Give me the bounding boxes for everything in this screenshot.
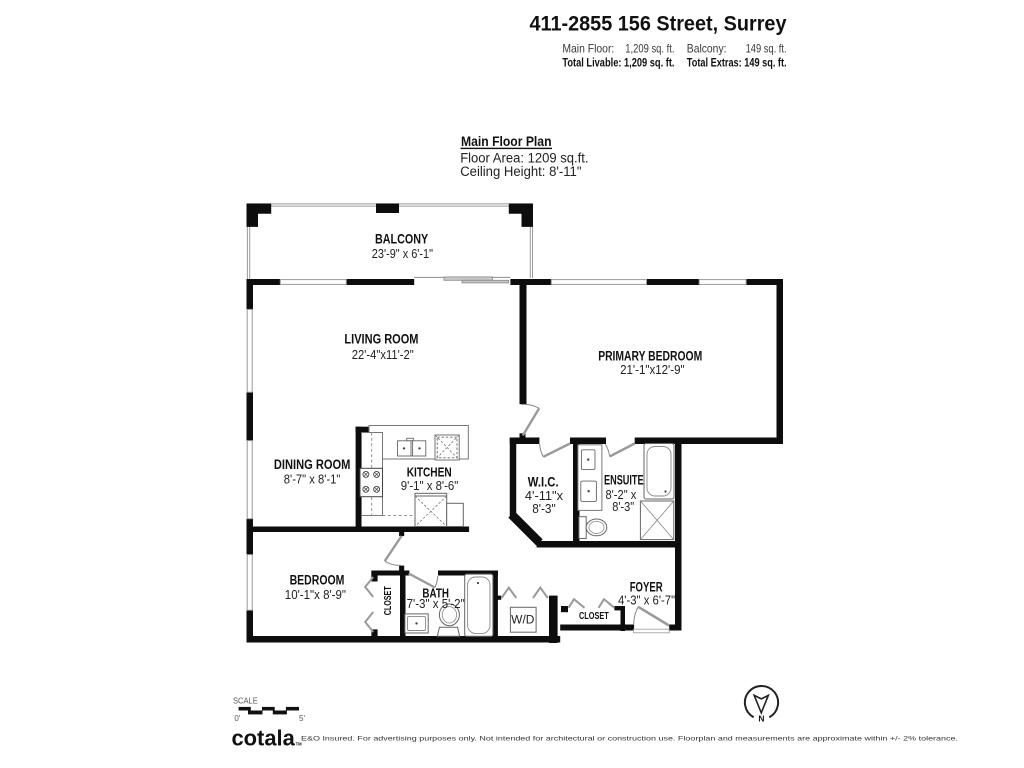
svg-text:Total Livable: 1,209 sq. ft.: Total Livable: 1,209 sq. ft. xyxy=(562,55,674,69)
svg-text:23'-9" x 6'-1": 23'-9" x 6'-1" xyxy=(372,247,433,261)
svg-text:W/D: W/D xyxy=(511,615,534,627)
svg-text:1,209 sq. ft.: 1,209 sq. ft. xyxy=(625,42,674,56)
svg-text:7'-3" x 5'-2": 7'-3" x 5'-2" xyxy=(407,597,465,611)
svg-text:CLOSET: CLOSET xyxy=(579,611,609,622)
svg-text:8'-3": 8'-3" xyxy=(612,500,634,514)
svg-text:DINING ROOM: DINING ROOM xyxy=(274,457,351,472)
svg-text:Total Extras: 149 sq. ft.: Total Extras: 149 sq. ft. xyxy=(687,55,787,69)
svg-text:411-2855 156 Street, Surrey: 411-2855 156 Street, Surrey xyxy=(530,13,787,36)
svg-text:4'-3" x 6'-7": 4'-3" x 6'-7" xyxy=(618,594,675,608)
svg-text:BALCONY: BALCONY xyxy=(375,232,428,247)
svg-text:CLOSET: CLOSET xyxy=(383,586,394,615)
svg-text:PRIMARY BEDROOM: PRIMARY BEDROOM xyxy=(598,349,702,364)
svg-text:E&O Insured. For advertising p: E&O Insured. For advertising purposes on… xyxy=(301,736,958,743)
svg-text:Main Floor:: Main Floor: xyxy=(562,42,614,56)
svg-text:10'-1"x 8'-9": 10'-1"x 8'-9" xyxy=(285,588,346,602)
svg-text:BEDROOM: BEDROOM xyxy=(290,573,345,588)
svg-text:0': 0' xyxy=(234,714,240,723)
svg-text:9'-1" x 8'-6": 9'-1" x 8'-6" xyxy=(401,479,459,493)
svg-text:Main Floor Plan: Main Floor Plan xyxy=(461,133,552,149)
svg-text:Ceiling Height: 8'-11": Ceiling Height: 8'-11" xyxy=(460,164,581,179)
svg-text:SCALE: SCALE xyxy=(233,696,258,706)
svg-text:8'-7" x 8'-1": 8'-7" x 8'-1" xyxy=(284,473,341,487)
svg-text:22'-4"x11'-2": 22'-4"x11'-2" xyxy=(352,348,414,362)
svg-text:Balcony:: Balcony: xyxy=(687,42,727,56)
svg-text:W.I.C.: W.I.C. xyxy=(528,475,559,490)
svg-text:N: N xyxy=(758,714,764,724)
svg-text:KITCHEN: KITCHEN xyxy=(407,465,452,480)
svg-text:LIVING ROOM: LIVING ROOM xyxy=(344,332,418,347)
svg-text:149 sq. ft.: 149 sq. ft. xyxy=(746,42,787,56)
svg-text:8'-3": 8'-3" xyxy=(532,502,556,516)
svg-text:21'-1"x12'-9": 21'-1"x12'-9" xyxy=(620,363,685,377)
svg-text:4'-11"x: 4'-11"x xyxy=(525,489,564,503)
svg-text:5': 5' xyxy=(299,714,305,723)
svg-text:FOYER: FOYER xyxy=(630,580,663,595)
svg-text:cotala: cotala xyxy=(232,725,296,750)
svg-text:ENSUITE: ENSUITE xyxy=(604,473,644,488)
